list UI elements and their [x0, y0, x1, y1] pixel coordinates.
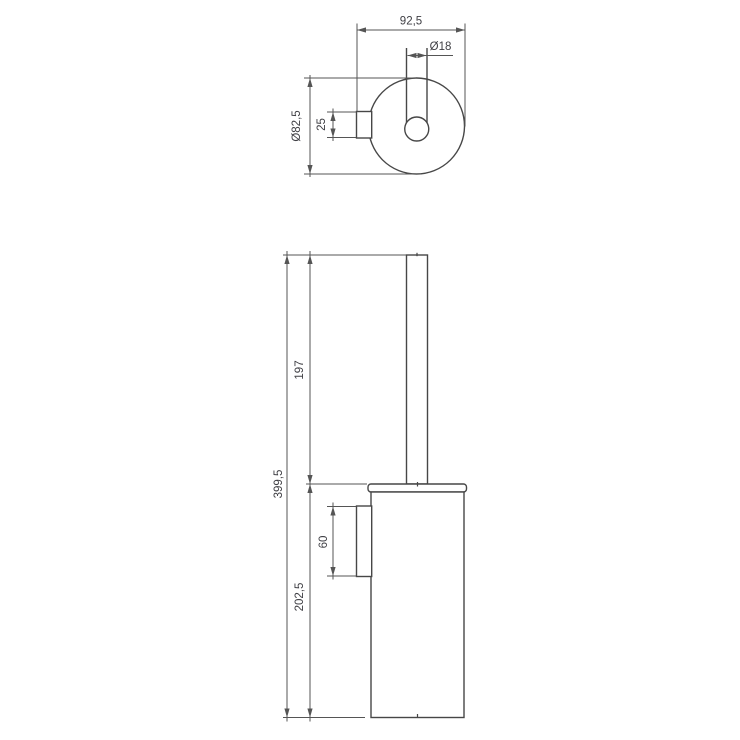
- dim-handle-dia-label: Ø18: [430, 41, 452, 53]
- dim-plate-height-label: 60: [318, 536, 330, 549]
- top-view-wall-plate: [357, 112, 372, 139]
- dim-handle-dia-arrow-right: [418, 53, 427, 58]
- dim-handle-dia-arrow-left: [408, 53, 417, 58]
- dim-depth-arrow-left: [357, 27, 366, 32]
- front-view-wall-plate: [357, 506, 372, 577]
- dimension-drawing: 92,5 Ø18 Ø82,5 25: [0, 0, 740, 740]
- dim-holder-dia-label: Ø82,5: [291, 110, 303, 141]
- front-view-handle: [407, 255, 428, 484]
- technical-drawing-page: 92,5 Ø18 Ø82,5 25: [0, 0, 740, 740]
- dim-total-height-label: 399,5: [273, 470, 285, 499]
- top-view: [357, 48, 465, 174]
- dim-plate-width-arrow-top: [330, 112, 335, 121]
- dim-container-height-arrow-bottom: [307, 709, 312, 718]
- dim-handle-length-arrow-bottom: [307, 475, 312, 484]
- dim-total-height-arrow-bottom: [284, 709, 289, 718]
- dim-container-height-arrow-top: [307, 484, 312, 493]
- dim-plate-height-arrow-bottom: [330, 567, 335, 576]
- dim-holder-dia-arrow-top: [307, 78, 312, 87]
- dim-depth-arrow-right: [456, 27, 465, 32]
- dim-depth-label: 92,5: [400, 16, 422, 28]
- dim-total-height-arrow-top: [284, 255, 289, 264]
- dim-plate-height-arrow-top: [330, 507, 335, 516]
- dim-container-height-label: 202,5: [294, 583, 306, 612]
- dim-plate-width-arrow-bottom: [330, 129, 335, 138]
- front-view: [357, 253, 467, 718]
- dim-handle-length-arrow-top: [307, 255, 312, 264]
- front-view-container: [371, 492, 464, 718]
- dim-handle-length-label: 197: [294, 360, 306, 379]
- dim-plate-width-label: 25: [316, 118, 328, 131]
- top-view-handle-circle: [405, 117, 429, 141]
- dim-holder-dia-arrow-bottom: [307, 165, 312, 174]
